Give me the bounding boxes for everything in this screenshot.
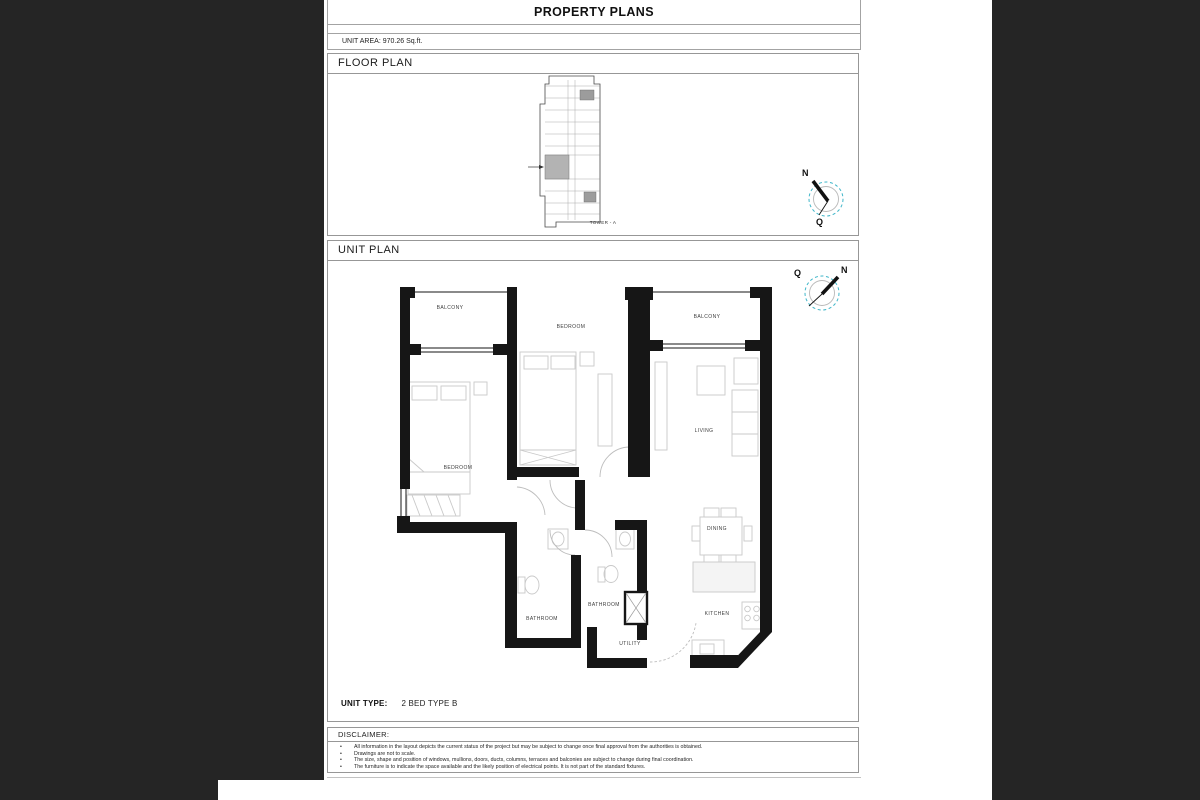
tower-core-lower	[584, 192, 596, 202]
tower-plan-drawing	[522, 74, 618, 230]
tower-label: TOWER - A	[568, 220, 638, 225]
door-swings	[517, 447, 696, 662]
unit-plan-compass: Q N	[794, 261, 850, 321]
highlighted-unit	[545, 155, 569, 179]
compass-qibla-label: Q	[816, 217, 823, 227]
bullet-icon: •	[340, 744, 346, 751]
disclaimer-item: •The size, shape and position of windows…	[338, 757, 852, 764]
floor-plan-compass: N Q	[798, 168, 854, 228]
disclaimer-header: DISCLAIMER:	[328, 728, 858, 742]
room-label-balcony-left: BALCONY	[405, 305, 495, 311]
disclaimer-panel: DISCLAIMER: •All information in the layo…	[327, 727, 859, 773]
room-label-utility: UTILITY	[585, 641, 675, 647]
document-header-table: PROPERTY PLANS UNIT AREA: 970.26 Sq.ft.	[327, 0, 861, 50]
bullet-icon: •	[340, 757, 346, 764]
room-label-dining: DINING	[672, 526, 762, 532]
disclaimer-item: •All information in the layout depicts t…	[338, 744, 852, 751]
unit-plan-header: UNIT PLAN	[328, 241, 858, 261]
unit-type-value: 2 BED TYPE B	[401, 699, 457, 708]
room-label-living: LIVING	[659, 428, 749, 434]
room-label-balcony-right: BALCONY	[662, 314, 752, 320]
page-title: PROPERTY PLANS	[327, 0, 861, 25]
compass-north-label: N	[802, 168, 809, 178]
tower-core-upper	[580, 90, 594, 100]
disclaimer-text: The size, shape and position of windows,…	[354, 757, 694, 764]
bullet-icon: •	[340, 764, 346, 771]
next-page-edge	[218, 780, 992, 800]
unit-plan-drawing: BALCONY BEDROOM BALCONY LIVING BEDROOM D…	[390, 282, 780, 675]
bullet-icon: •	[340, 751, 346, 758]
unit-area-text: UNIT AREA: 970.26 Sq.ft.	[327, 33, 861, 50]
compass-qibla-label: Q	[794, 268, 801, 278]
unit-type-row: UNIT TYPE: 2 BED TYPE B	[341, 699, 458, 708]
disclaimer-item: •The furniture is to indicate the space …	[338, 764, 852, 771]
room-label-bedroom-left: BEDROOM	[413, 465, 503, 471]
room-label-kitchen: KITCHEN	[672, 611, 762, 617]
page-bottom-shadow	[327, 777, 861, 778]
room-label-bathroom-2: BATHROOM	[559, 602, 649, 608]
disclaimer-text: The furniture is to indicate the space a…	[354, 764, 645, 771]
unit-type-label: UNIT TYPE:	[341, 699, 387, 708]
document-page: PROPERTY PLANS UNIT AREA: 970.26 Sq.ft. …	[324, 0, 992, 780]
duct-shaft	[625, 592, 647, 624]
disclaimer-item: •Drawings are not to scale.	[338, 751, 852, 758]
compass-north-label: N	[841, 265, 848, 275]
disclaimer-text: All information in the layout depicts th…	[354, 744, 702, 751]
disclaimer-text: Drawings are not to scale.	[354, 751, 415, 758]
room-label-bathroom-1: BATHROOM	[497, 616, 587, 622]
tower-key-plan	[522, 74, 618, 230]
room-label-bedroom-middle: BEDROOM	[526, 324, 616, 330]
floor-plan-header: FLOOR PLAN	[328, 54, 858, 74]
disclaimer-list: •All information in the layout depicts t…	[338, 744, 852, 770]
